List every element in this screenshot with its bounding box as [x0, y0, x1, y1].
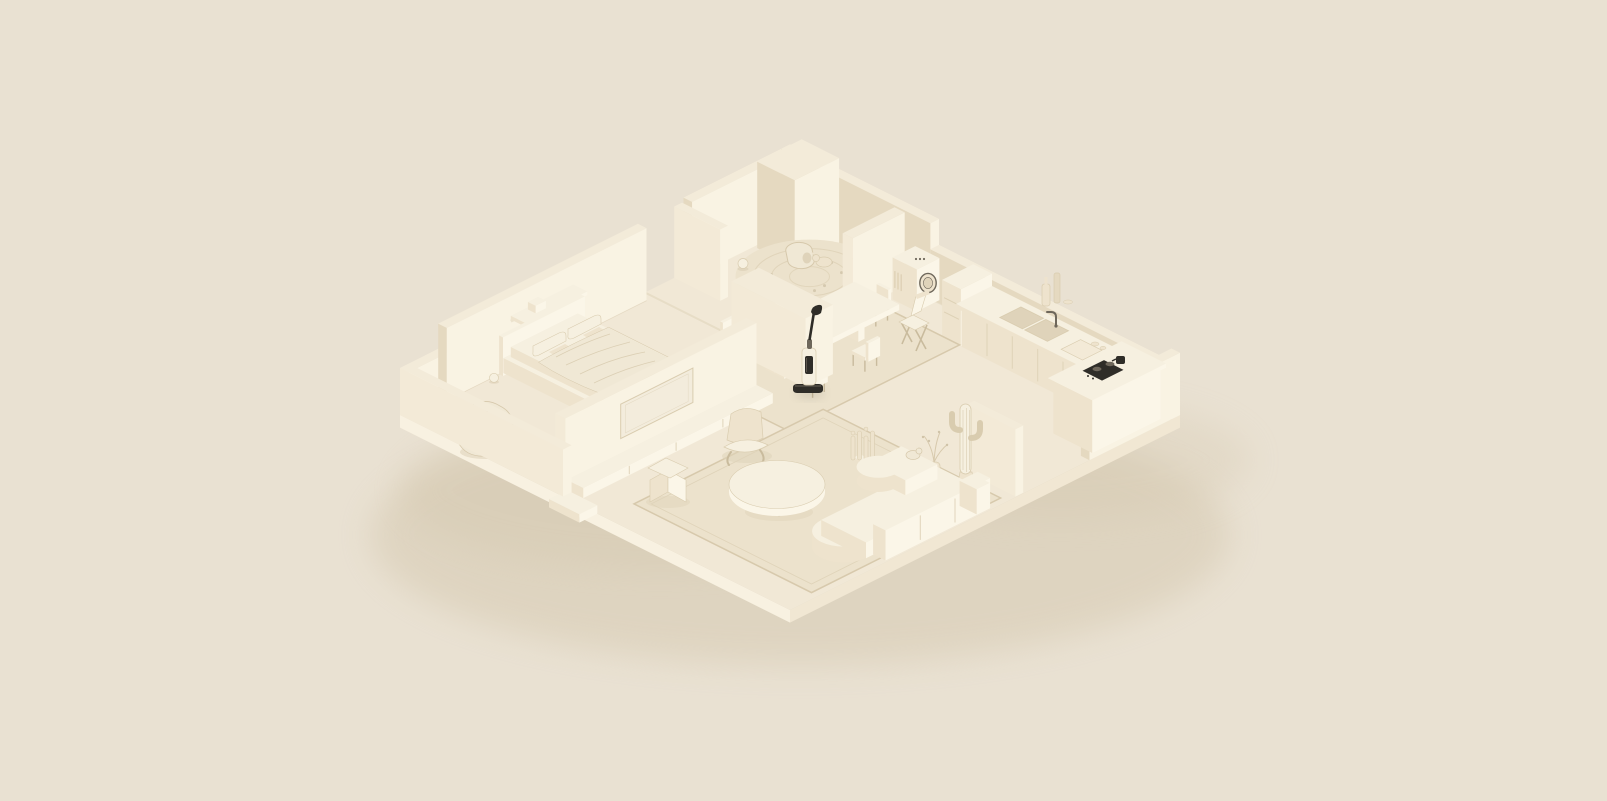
- ledge-bowl: [1064, 300, 1073, 304]
- screen-panel-right-face: [1015, 425, 1023, 496]
- apartment-render: Monochrome cream isometric apartment cut…: [0, 0, 1607, 801]
- rug-toy-bit: [823, 284, 826, 287]
- burner: [1106, 362, 1115, 366]
- washer-knob: [923, 258, 925, 260]
- bowl-small: [1100, 346, 1106, 349]
- tall-drawer-unit-left-face: [942, 280, 961, 347]
- rug-toy-bit: [813, 289, 816, 292]
- sculpture-slat: [871, 431, 875, 460]
- sofa-back-cushions-left-face: [873, 524, 885, 560]
- cat-head: [813, 255, 820, 262]
- sculpture-slat: [858, 431, 862, 460]
- burner: [1093, 367, 1102, 371]
- front-parapet-right-face: [563, 445, 572, 496]
- lounge-back: [727, 408, 763, 443]
- branch-leaf: [938, 431, 940, 433]
- branch-leaf: [928, 440, 930, 442]
- branch-leaf: [922, 436, 924, 438]
- bottle-1: [1042, 284, 1050, 306]
- sofa-cat-head: [916, 448, 922, 454]
- bowl: [1091, 342, 1099, 346]
- washer-door-glass: [923, 277, 932, 288]
- pet-tunnel-opening: [803, 253, 812, 264]
- rug-toy-bit: [840, 271, 843, 274]
- washer-knob: [915, 258, 917, 260]
- kettle: [1116, 356, 1125, 364]
- render-stage: Monochrome cream isometric apartment cut…: [0, 0, 1607, 801]
- apartment-world: [370, 139, 1250, 665]
- washer-knob: [919, 258, 921, 260]
- branch-leaf: [946, 444, 948, 446]
- doorway-panel-right-face: [720, 226, 728, 301]
- floor-lamp-ball: [490, 373, 499, 382]
- play-ball: [738, 259, 748, 269]
- headboard-left-face: [499, 335, 503, 376]
- sculpture-slat: [851, 436, 855, 460]
- bottle-2: [1054, 273, 1060, 303]
- vacuum-neck: [807, 339, 812, 349]
- coffee-table-top: [729, 461, 825, 509]
- sculpture-slat: [864, 436, 868, 460]
